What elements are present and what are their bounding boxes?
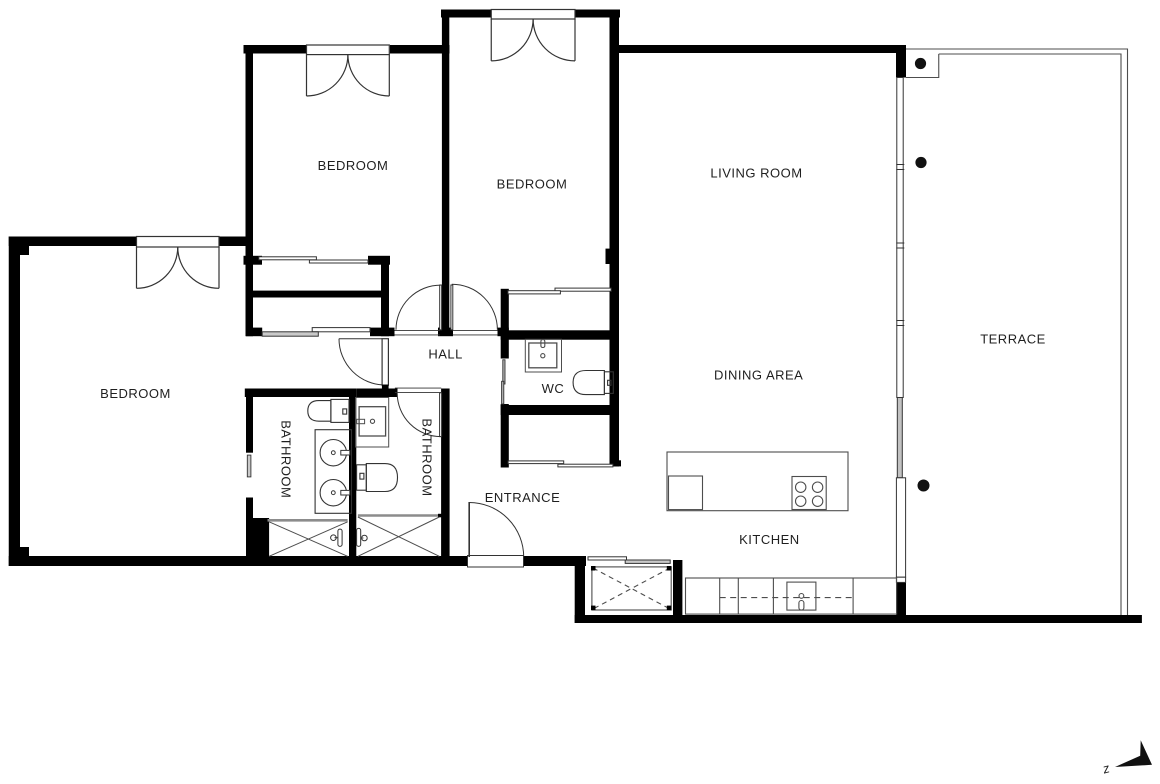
svg-text:BEDROOM: BEDROOM — [318, 158, 389, 173]
svg-text:HALL: HALL — [428, 346, 463, 361]
svg-text:DINING AREA: DINING AREA — [714, 368, 803, 383]
svg-text:BEDROOM: BEDROOM — [497, 177, 568, 192]
svg-text:KITCHEN: KITCHEN — [739, 532, 800, 547]
svg-text:WC: WC — [542, 381, 565, 396]
svg-text:TERRACE: TERRACE — [980, 331, 1046, 346]
svg-text:ENTRANCE: ENTRANCE — [485, 490, 561, 505]
svg-text:BATHROOM: BATHROOM — [278, 420, 293, 498]
svg-text:LIVING ROOM: LIVING ROOM — [710, 166, 802, 181]
svg-text:BATHROOM: BATHROOM — [420, 418, 435, 496]
svg-text:BEDROOM: BEDROOM — [100, 386, 171, 401]
